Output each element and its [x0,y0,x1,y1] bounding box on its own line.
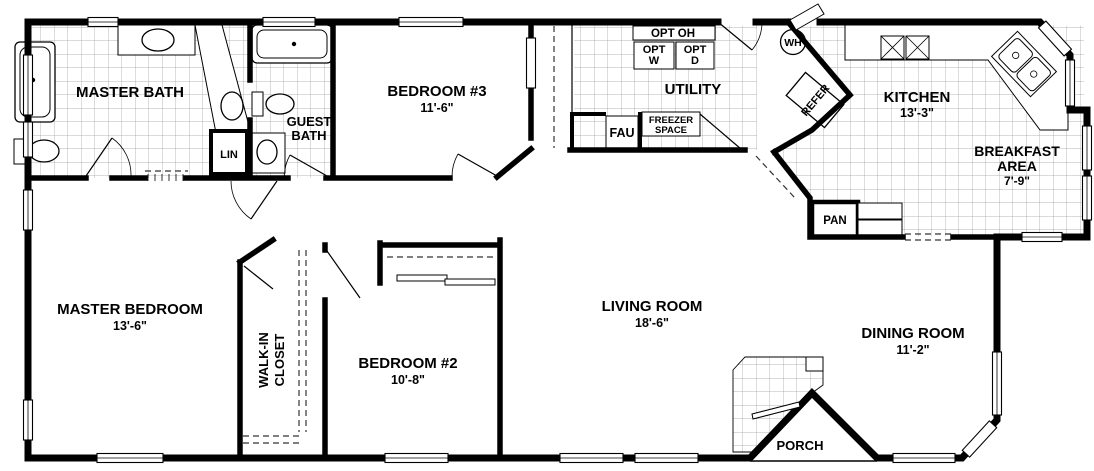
opt-d-label: D [691,55,699,67]
window [1022,233,1062,242]
toilet-icon [252,92,294,116]
window [24,55,33,115]
window [88,18,118,27]
breakfast-label: BREAKFAST [974,143,1060,159]
sink-icon [142,29,174,51]
window [263,18,315,27]
opt-w-label: W [649,55,660,67]
bathtub-icon [15,42,55,122]
base-cabinet [858,203,902,219]
bedroom3-label: BEDROOM #3 [387,83,486,100]
window [893,454,955,463]
bedroom3-dim: 11'-6" [420,101,453,115]
window [1083,126,1092,170]
window [962,421,996,457]
toilet-icon [14,139,59,164]
sink-icon [257,140,277,164]
wall-opening [527,38,536,88]
freezer-label: SPACE [655,125,687,136]
window [385,454,448,463]
window [97,454,163,463]
breakfast-label: AREA [997,158,1037,174]
dining-room-label: DINING ROOM [861,325,964,342]
wh-label: WH [784,37,802,49]
window [24,400,33,440]
bedroom2-label: BEDROOM #2 [358,355,457,372]
pan-label: PAN [823,215,846,227]
walk-in-closet-label: WALK-IN CLOSET [256,332,287,388]
base-cabinet [858,220,902,236]
opt-oh-label: OPT OH [651,28,695,40]
guest-bath-label: GUEST [287,114,332,129]
window [1066,60,1075,106]
porch-label: PORCH [777,438,824,453]
entry-shelf [806,357,823,371]
breakfast-dim: 7'-9" [1004,174,1030,188]
dining-room-dim: 11'-2" [896,343,929,357]
window [399,18,463,27]
living-room-label: LIVING ROOM [602,298,703,315]
lin-label: LIN [220,149,238,161]
door-swing [244,266,273,289]
window [1083,176,1092,220]
door-swing [452,154,497,177]
window [24,190,33,230]
window [993,352,1002,415]
utility-label: UTILITY [665,81,722,98]
living-room-dim: 18'-6" [635,316,669,330]
master-bedroom-dim: 13'-6" [113,319,147,333]
svg-text:WALK-IN: WALK-IN [256,332,271,388]
master-bath-label: MASTER BATH [76,84,184,101]
door-swing [231,181,277,219]
bathtub-icon [252,25,332,63]
sliding-door [445,279,495,285]
fau-label: FAU [610,126,635,140]
kitchen-dim: 13'-3" [900,106,934,120]
floor-plan: MASTER BATH GUEST BATH LIN BEDROOM #3 11… [0,0,1094,471]
guest-bath-label: BATH [291,128,326,143]
window [635,454,698,463]
bedroom2-dim: 10'-8" [391,373,425,387]
kitchen-label: KITCHEN [884,89,951,106]
window [560,454,623,463]
sliding-door [397,275,447,281]
sink-icon [221,92,243,120]
svg-text:CLOSET: CLOSET [272,334,287,387]
door-swing [327,251,360,298]
master-bedroom-label: MASTER BEDROOM [57,301,203,318]
window [24,122,33,157]
